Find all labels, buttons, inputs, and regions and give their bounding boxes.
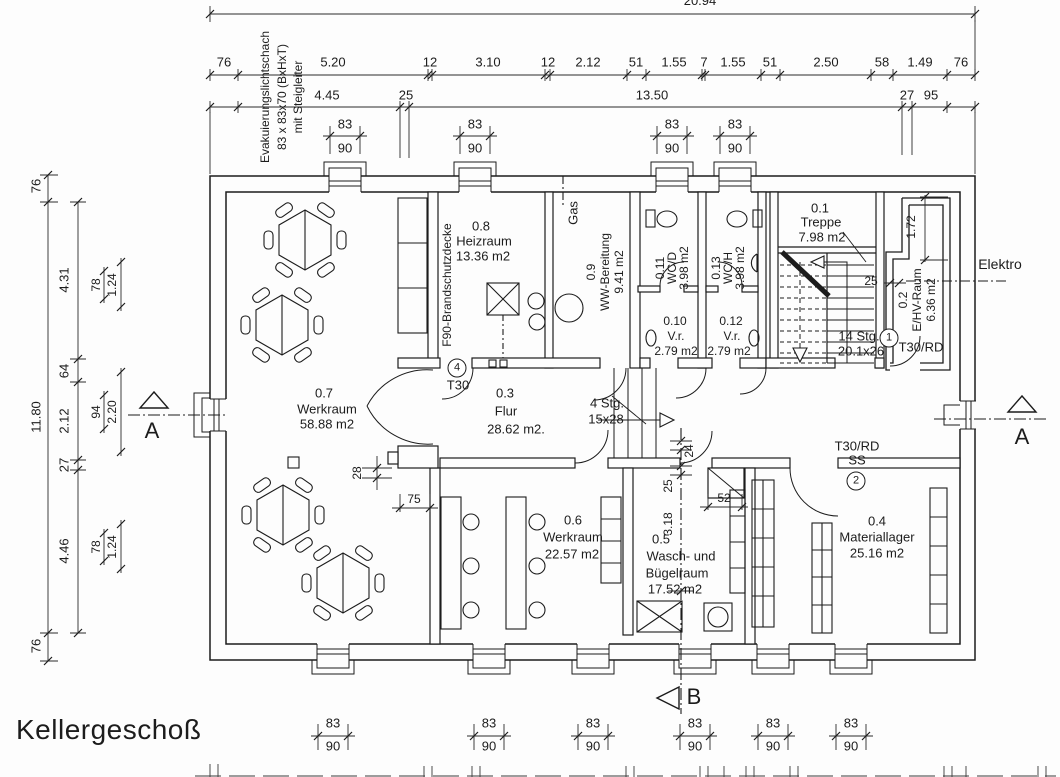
room-012-name: V.r.	[724, 330, 741, 342]
dim-label: 25	[399, 89, 413, 102]
plan-linework	[0, 0, 1060, 777]
room-08-name: Heizraum	[456, 235, 512, 248]
room-013-area: 3.98 m2	[734, 246, 746, 289]
dim-label: 58	[875, 56, 889, 69]
room-05-name2: Bügelraum	[646, 567, 709, 580]
dim-label: 1.55	[720, 56, 745, 69]
section-marker-a-right: A	[1015, 426, 1030, 448]
dim-label: 25	[864, 275, 877, 287]
small-stair-note1: 4 Stg.	[590, 397, 624, 410]
door-tag-4: 4	[448, 359, 467, 378]
window-width: 83	[482, 717, 496, 730]
section-lines	[128, 176, 1048, 714]
dim-label: 12	[423, 56, 437, 69]
section-marker-b: B	[687, 686, 702, 708]
door-tag-1: 1	[880, 329, 899, 348]
dim-label: 94	[90, 405, 102, 418]
dim-label: 7	[700, 56, 707, 69]
room-010-num: 0.10	[663, 315, 686, 327]
room-09-name: WW-Bereitung	[599, 233, 611, 311]
dim-label: 2.12	[575, 56, 600, 69]
dim-label: 1.72	[905, 215, 917, 238]
dim-label: 75	[407, 493, 420, 505]
dim-label: 78	[90, 540, 102, 553]
floor-plan-kellergeschoss: Kellergeschoß 20.94 76 5.20 12 3.10 12 2…	[0, 0, 1060, 777]
section-marker-a-left: A	[145, 420, 160, 442]
room-06-area: 22.57 m2	[545, 548, 599, 561]
dim-label: 76	[30, 639, 43, 653]
window-width: 83	[844, 717, 858, 730]
dim-label: 2.50	[813, 56, 838, 69]
window-height: 90	[766, 740, 780, 753]
dim-label: 76	[217, 56, 231, 69]
window-height: 90	[688, 740, 702, 753]
room-09-area: 9.41 m2	[613, 250, 625, 293]
lower-drawing-edge	[195, 764, 1056, 777]
dim-overall-top: 20.94	[684, 0, 717, 8]
room-01-name: Treppe	[801, 216, 842, 229]
gas-label: Gas	[567, 201, 580, 225]
main-stair-note2: 20.1x26	[838, 345, 884, 358]
window-height: 90	[338, 142, 352, 155]
room-04-name: Materiallager	[839, 531, 914, 544]
room-05-name1: Wasch- und	[647, 550, 716, 563]
dim-label: 2.12	[58, 408, 71, 433]
dim-label: 11.80	[30, 401, 43, 433]
dim-label: 3.10	[475, 56, 500, 69]
room-01-area: 7.98 m2	[799, 231, 846, 244]
window-height: 90	[844, 740, 858, 753]
main-stair-note1: 14 Stg.	[838, 330, 879, 343]
dim-label: 28	[351, 466, 363, 479]
dim-label: 25	[662, 479, 674, 492]
small-stair-note2: 15x28	[588, 413, 623, 426]
room-02-area: 6.36 m2	[925, 278, 937, 321]
window-width: 83	[766, 717, 780, 730]
dim-label: 4.46	[58, 538, 71, 563]
dimension-ticks	[44, 10, 979, 740]
room-010-name: V.r.	[668, 330, 685, 342]
dim-label: 1.24	[106, 273, 118, 296]
dim-label: 76	[954, 56, 968, 69]
elektro-label: Elektro	[978, 257, 1022, 271]
dim-label: 95	[924, 89, 938, 102]
dimension-lines	[40, 6, 975, 750]
room-07-name: Werkraum	[297, 403, 357, 416]
dim-label: 27	[58, 458, 71, 472]
evac-note-line3: mit Steigleiter	[292, 61, 304, 134]
dim-label: 52	[717, 492, 730, 504]
room-07-area: 58.88 m2	[300, 418, 354, 431]
dim-label: 51	[763, 56, 777, 69]
evac-note-line2: 83 x 83x70 (BxHxT)	[276, 44, 288, 150]
room-011-area: 3.98 m2	[678, 246, 690, 289]
window-width: 83	[586, 717, 600, 730]
dim-label: 1.55	[661, 56, 686, 69]
dim-label: 4.31	[58, 267, 71, 292]
window-height: 90	[586, 740, 600, 753]
dim-label: 27	[900, 89, 914, 102]
window-width: 83	[665, 118, 679, 131]
window-height: 90	[468, 142, 482, 155]
window-height: 90	[665, 142, 679, 155]
dim-label: 5.20	[320, 56, 345, 69]
window-width: 83	[468, 118, 482, 131]
door-tag-2-label: T30/RD	[835, 440, 880, 453]
room-03-area: 28.62 m2.	[487, 423, 545, 436]
room-02-num: 0.2	[897, 292, 909, 309]
room-06-name: Werkraum	[543, 531, 603, 544]
room-04-num: 0.4	[868, 515, 886, 528]
dim-label: 3.18	[662, 512, 674, 535]
dim-label: 64	[58, 364, 71, 378]
door-tag-1-label: T30/RD	[899, 341, 944, 354]
dim-label: 76	[30, 179, 43, 193]
dim-label: 78	[90, 278, 102, 291]
room-012-area: 2.79 m2	[707, 345, 750, 357]
room-04-area: 25.16 m2	[850, 547, 904, 560]
room-01-num: 0.1	[811, 202, 829, 215]
window-width: 83	[728, 118, 742, 131]
room-012-num: 0.12	[719, 315, 742, 327]
room-09-num: 0.9	[585, 264, 597, 281]
room-03-num: 0.3	[496, 387, 514, 400]
room-05-area: 17.52 m2	[648, 583, 702, 596]
drawing-title: Kellergeschoß	[16, 714, 201, 746]
window-height: 90	[326, 740, 340, 753]
f90-note: F90-Brandschutzdecke	[441, 223, 453, 346]
dim-label: 4.45	[314, 89, 339, 102]
door-tag-4-label: T30	[447, 379, 469, 392]
room-08-num: 0.8	[472, 220, 490, 233]
dim-label: 12	[541, 56, 555, 69]
dim-label: 24	[683, 444, 695, 457]
window-height: 90	[482, 740, 496, 753]
window-width: 83	[326, 717, 340, 730]
room-010-area: 2.79 m2	[654, 345, 697, 357]
dim-label: 51	[629, 56, 643, 69]
evac-note-line1: Evakuierungslichtschach	[259, 31, 271, 163]
room-03-name: Flur	[495, 405, 517, 418]
dim-label: 13.50	[636, 89, 669, 102]
door-tag-2-label2: SS	[848, 454, 865, 467]
room-08-area: 13.36 m2	[456, 250, 510, 263]
door-tag-2: 2	[847, 472, 866, 491]
dim-label: 2.20	[106, 400, 118, 423]
dim-label: 1.24	[106, 535, 118, 558]
window-width: 83	[338, 118, 352, 131]
window-width: 83	[688, 717, 702, 730]
room-06-num: 0.6	[564, 514, 582, 527]
window-height: 90	[728, 142, 742, 155]
dim-label: 1.49	[907, 56, 932, 69]
room-02-name: E/HV-Raum	[911, 268, 923, 331]
room-07-num: 0.7	[315, 387, 333, 400]
